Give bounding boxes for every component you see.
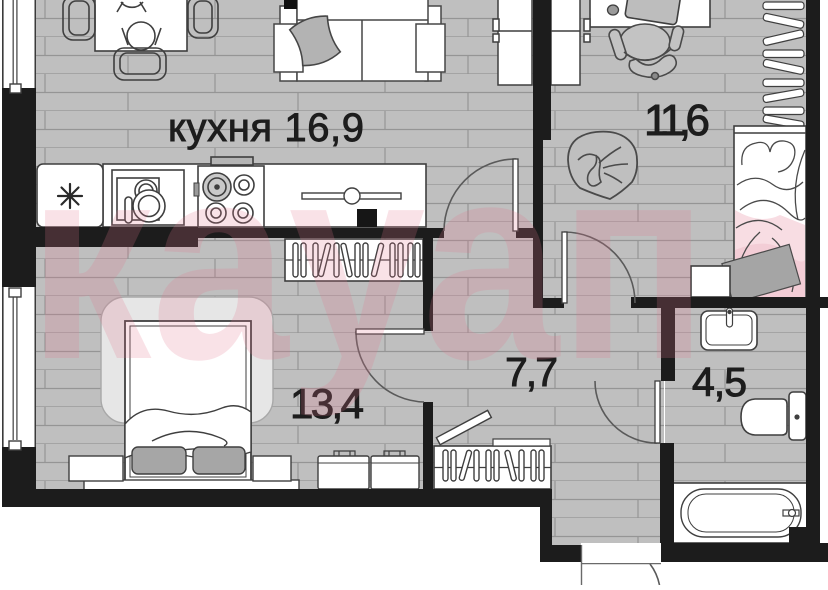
svg-text:кауап: кауап	[28, 106, 708, 419]
